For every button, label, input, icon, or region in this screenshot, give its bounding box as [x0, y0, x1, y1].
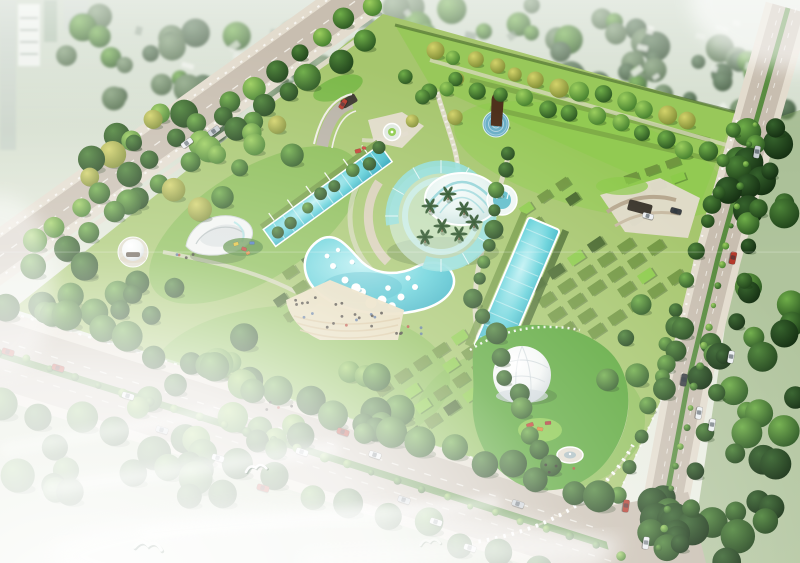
mist-overlay	[0, 0, 800, 563]
scene-canvas	[0, 0, 800, 563]
park-aerial-rendering	[0, 0, 800, 563]
seam-artifact	[0, 252, 800, 253]
